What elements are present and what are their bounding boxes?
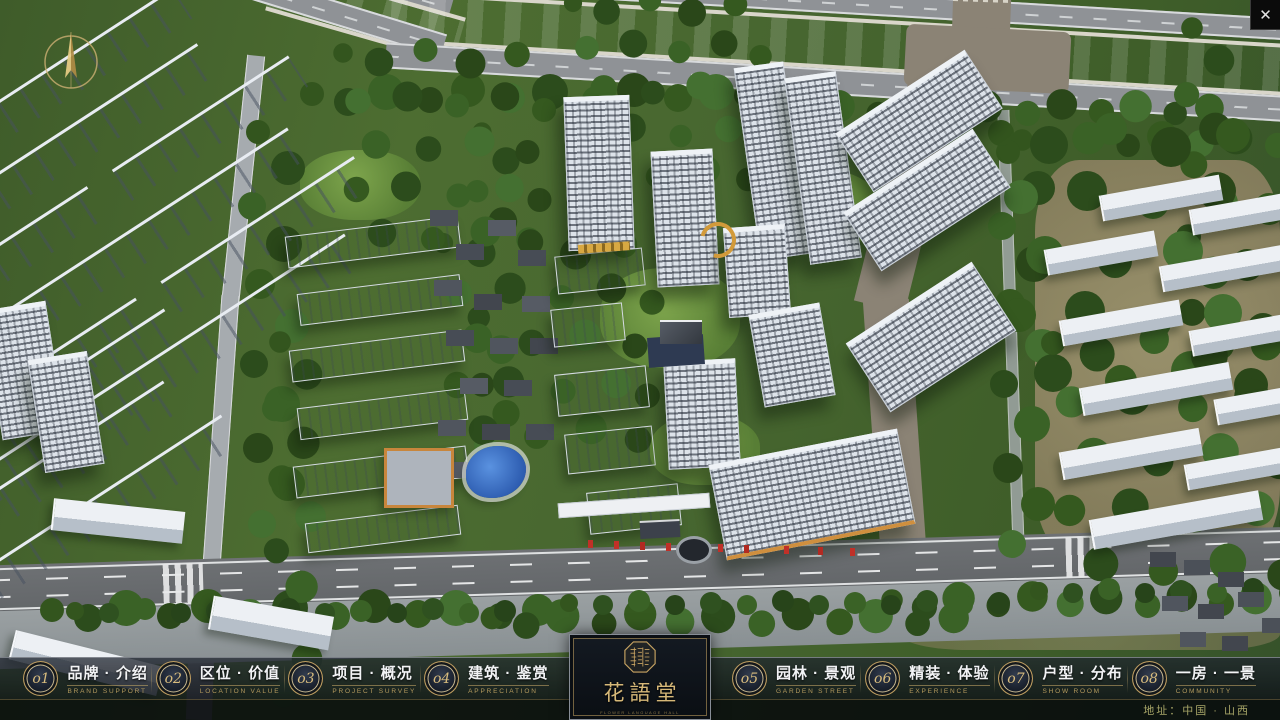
brand-name: 花語堂 xyxy=(599,677,682,707)
nav-label-en: BRAND SUPPORT xyxy=(67,685,147,695)
nav-group-right: o5 园林 · 景观 GARDEN STREET o6 精装 · 体验 EXPE… xyxy=(714,658,1280,699)
nav-number-badge: o6 xyxy=(865,661,900,696)
nav-item-garden[interactable]: o5 园林 · 景观 GARDEN STREET xyxy=(732,661,856,696)
nav-number-badge: o8 xyxy=(1132,661,1167,696)
flag-row xyxy=(588,540,593,548)
nav-number-badge: o7 xyxy=(998,661,1033,696)
nav-item-location[interactable]: o2 区位 · 价值 LOCATION VALUE xyxy=(156,661,281,696)
brand-logo-panel[interactable]: 花語堂 FLOWER LANGUAGE HALL xyxy=(569,634,711,720)
nav-divider xyxy=(284,665,285,693)
street-tree-row xyxy=(560,594,578,612)
nav-label-zh: 区位 · 价值 xyxy=(200,662,280,683)
nav-label-en: COMMUNITY xyxy=(1176,685,1256,695)
compass-icon xyxy=(36,26,106,101)
nav-item-architecture[interactable]: o4 建筑 · 鉴赏 APPRECIATION xyxy=(424,661,548,696)
tree-cluster xyxy=(1181,17,1203,39)
nav-divider xyxy=(860,665,861,693)
nav-label-zh: 精装 · 体验 xyxy=(909,662,989,683)
courtyard-house-cluster xyxy=(1150,552,1176,567)
midrise-block xyxy=(550,302,626,347)
residential-tower xyxy=(563,95,634,251)
tree-cluster xyxy=(988,120,1014,146)
address-text: 地址：中国 · 山西 xyxy=(1143,702,1250,718)
nav-label-zh: 一房 · 一景 xyxy=(1176,662,1256,683)
nav-item-brand[interactable]: o1 品牌 · 介绍 BRAND SUPPORT xyxy=(23,661,147,696)
nav-number-badge: o5 xyxy=(732,661,767,696)
nav-number-badge: o1 xyxy=(23,661,58,696)
nav-divider xyxy=(420,665,421,693)
brand-tagline: FLOWER LANGUAGE HALL xyxy=(600,710,680,715)
entrance-gate xyxy=(640,519,681,539)
nav-divider xyxy=(994,665,995,693)
nav-number-badge: o3 xyxy=(288,661,323,696)
clubhouse-building xyxy=(384,448,454,508)
nav-label-en: GARDEN STREET xyxy=(776,685,856,695)
nav-item-project[interactable]: o3 项目 · 概况 PROJECT SURVEY xyxy=(288,661,416,696)
residential-tower xyxy=(663,358,741,470)
nav-group-left: o1 品牌 · 介绍 BRAND SUPPORT o2 区位 · 价值 LOCA… xyxy=(0,658,566,699)
nav-item-floorplan[interactable]: o7 户型 · 分布 SHOW ROOM xyxy=(998,661,1122,696)
nav-divider xyxy=(151,665,152,693)
courtyard-house-cluster xyxy=(430,210,458,226)
nav-divider xyxy=(1127,665,1128,693)
nav-label-en: PROJECT SURVEY xyxy=(332,685,416,695)
nav-item-interior[interactable]: o6 精装 · 体验 EXPERIENCE xyxy=(865,661,989,696)
masterplan-viewport: ✕ o1 品牌 · 介绍 BRAND SUPPORT o2 区位 · 价值 LO… xyxy=(0,0,1280,720)
nav-number-badge: o2 xyxy=(156,661,191,696)
nav-label-en: APPRECIATION xyxy=(468,685,548,695)
street-tree-row xyxy=(1030,582,1048,600)
tree-cluster xyxy=(481,607,504,630)
nav-item-views[interactable]: o8 一房 · 一景 COMMUNITY xyxy=(1132,661,1256,696)
close-button[interactable]: ✕ xyxy=(1250,0,1280,30)
nav-label-zh: 品牌 · 介绍 xyxy=(67,662,147,683)
residential-tower xyxy=(650,148,719,287)
nav-label-zh: 园林 · 景观 xyxy=(776,662,856,683)
nav-label-en: LOCATION VALUE xyxy=(200,685,281,695)
nav-label-en: SHOW ROOM xyxy=(1042,685,1122,695)
nav-label-zh: 户型 · 分布 xyxy=(1042,662,1122,683)
nav-label-zh: 建筑 · 鉴赏 xyxy=(468,662,548,683)
tree-cluster xyxy=(881,589,903,611)
brand-seal-icon xyxy=(623,640,657,674)
nav-label-zh: 项目 · 概况 xyxy=(332,662,412,683)
entrance-fountain xyxy=(676,536,712,564)
nav-label-en: EXPERIENCE xyxy=(909,685,989,695)
pavilion-roof xyxy=(660,320,702,344)
nav-number-badge: o4 xyxy=(424,661,459,696)
